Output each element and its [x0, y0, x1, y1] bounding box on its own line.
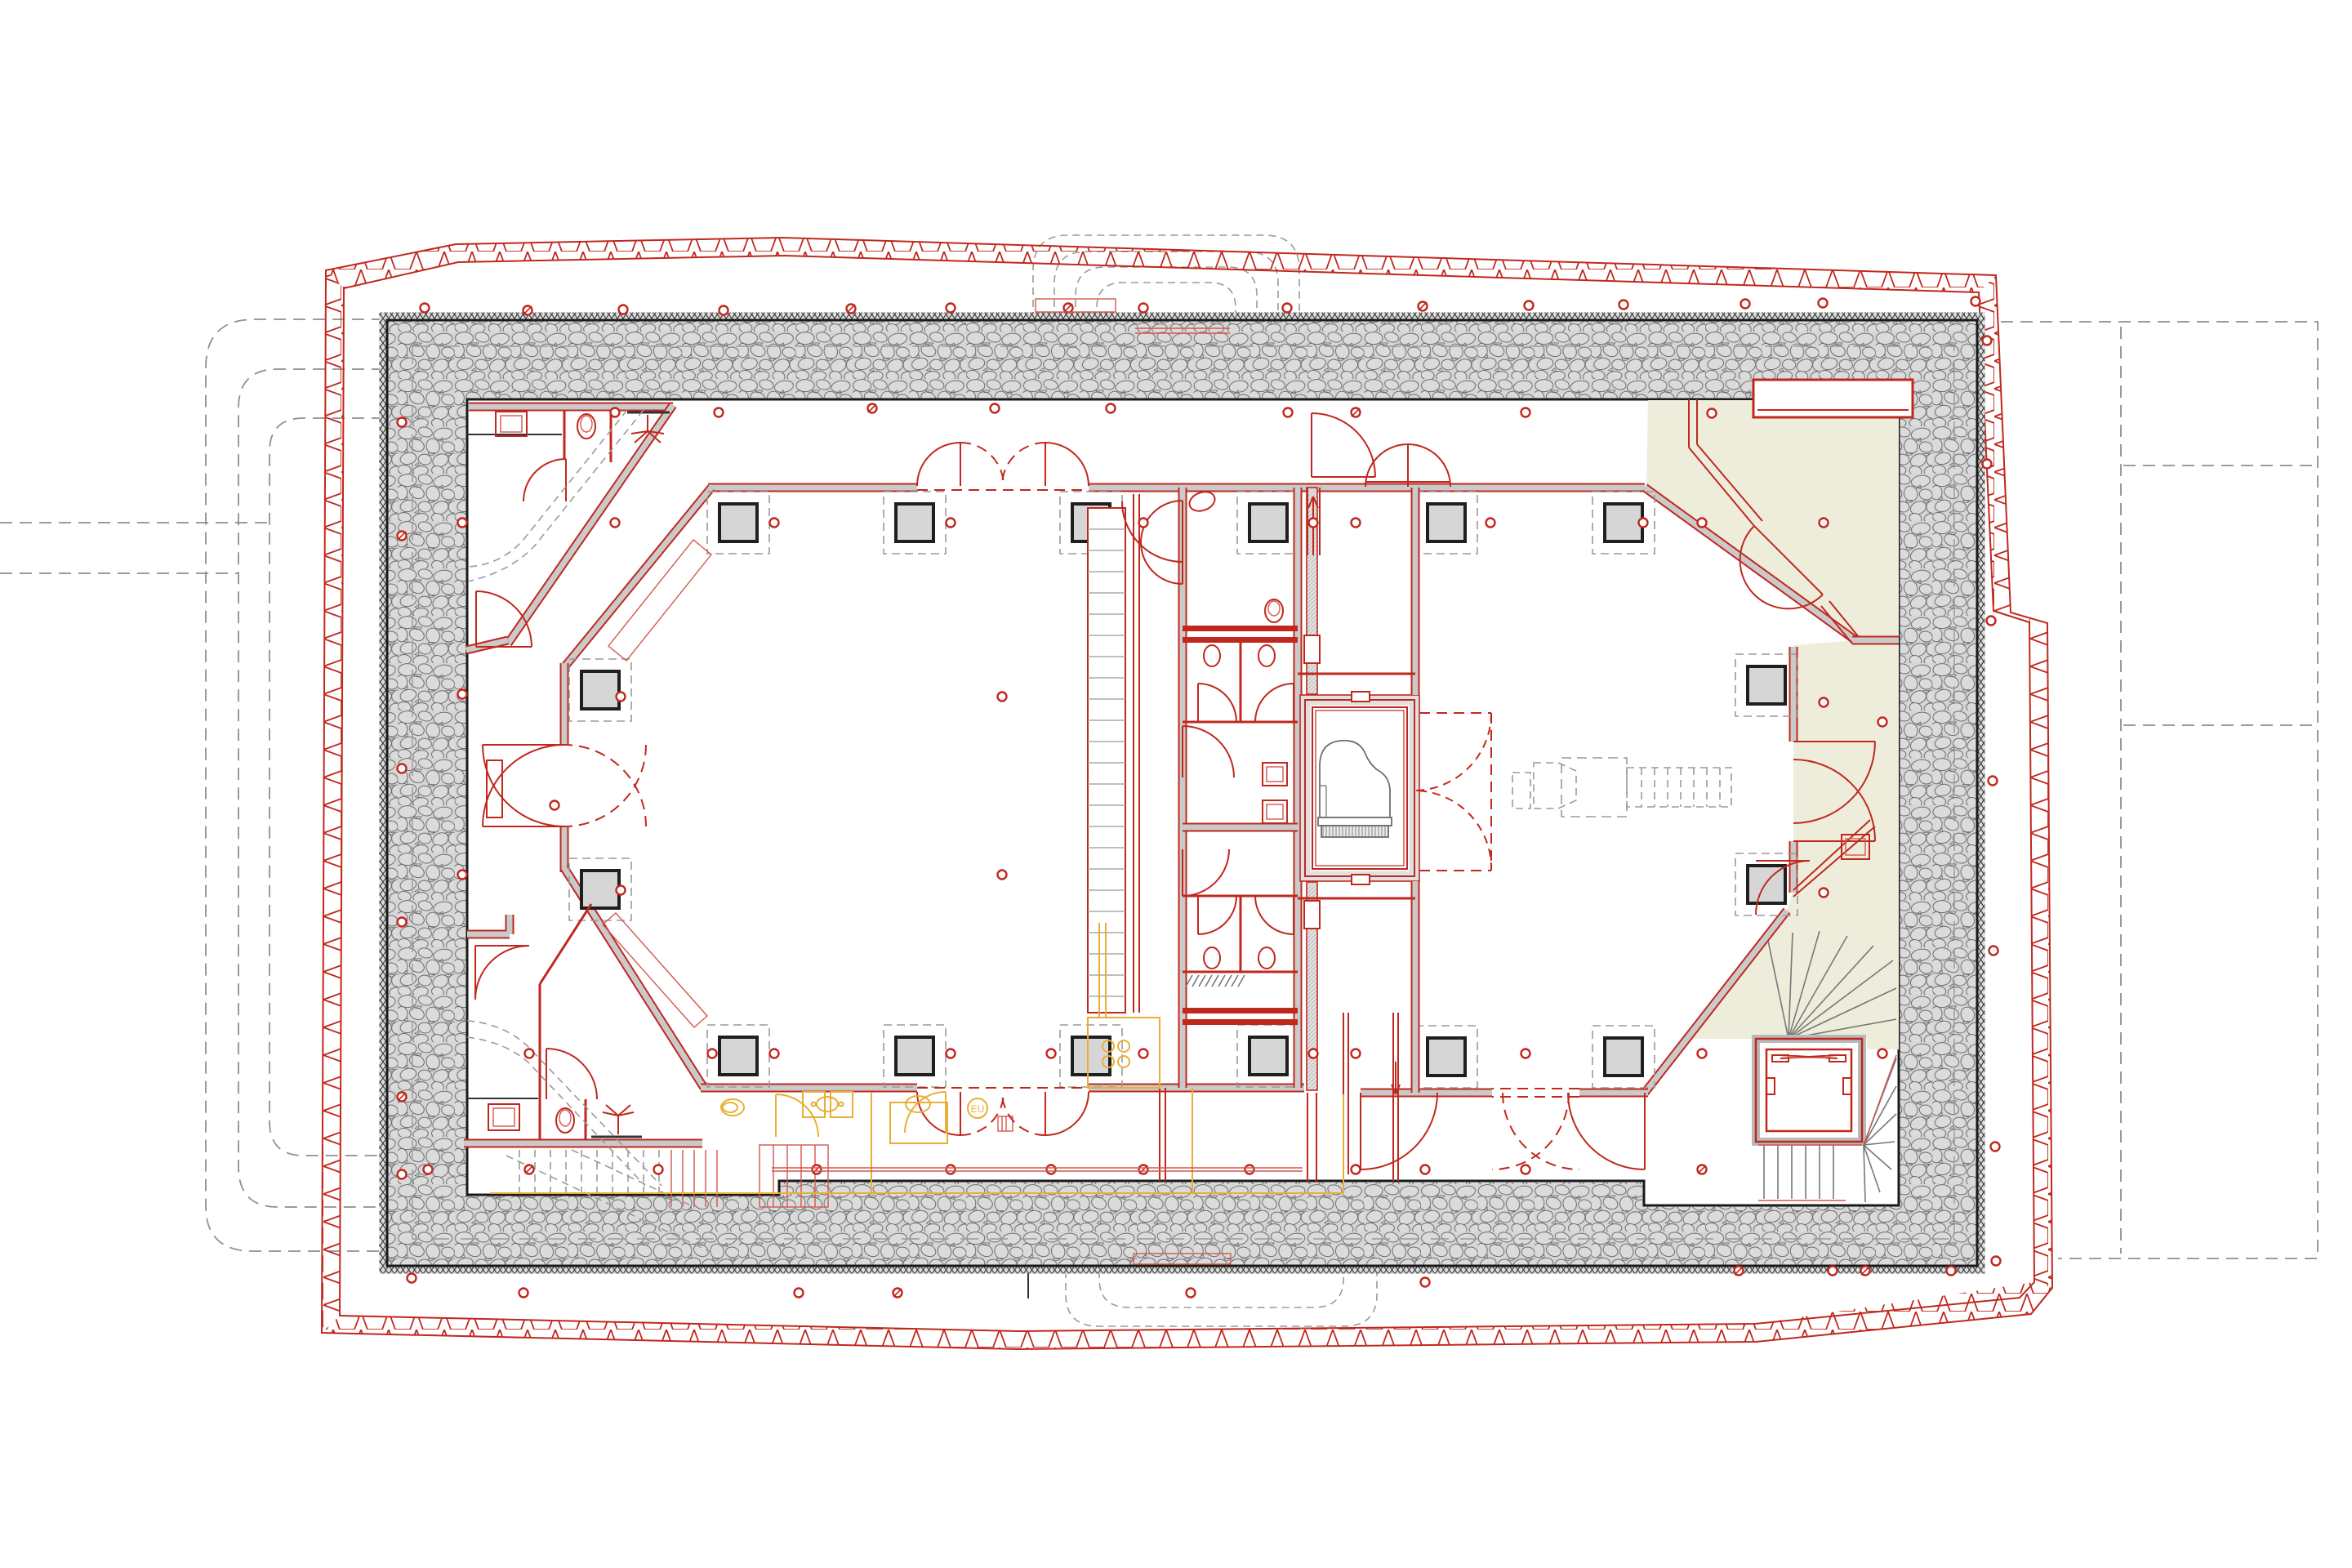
svg-text:EU: EU	[971, 1103, 985, 1115]
